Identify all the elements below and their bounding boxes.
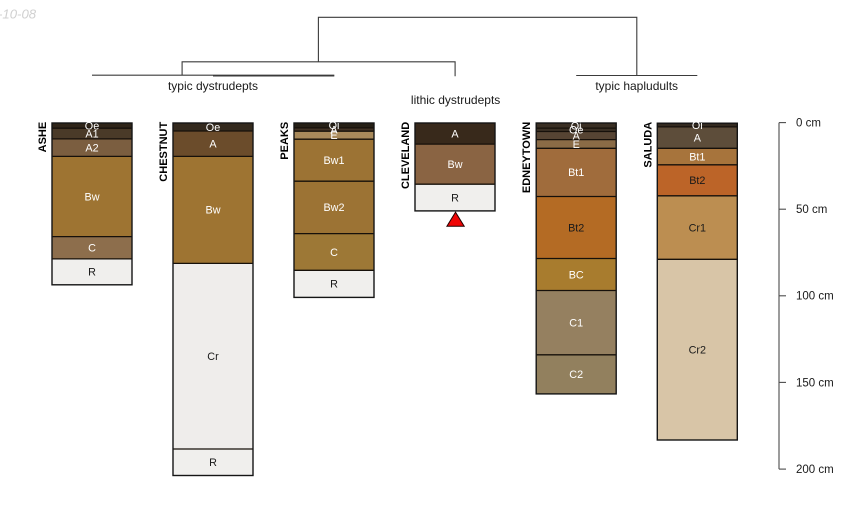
svg-text:A: A (694, 132, 702, 144)
svg-text:Bw: Bw (85, 191, 100, 203)
svg-text:A: A (451, 128, 459, 140)
svg-text:E: E (330, 130, 337, 142)
svg-text:Oe: Oe (206, 122, 220, 134)
svg-text:CLEVELAND: CLEVELAND (400, 122, 412, 189)
svg-text:R: R (330, 279, 338, 291)
svg-text:PEAKS: PEAKS (279, 122, 291, 160)
svg-text:EDNEYTOWN: EDNEYTOWN (521, 122, 533, 193)
svg-text:typic hapludults: typic hapludults (595, 79, 678, 93)
svg-text:R: R (209, 457, 217, 469)
svg-text:Bw2: Bw2 (323, 202, 344, 214)
svg-text:ASHE: ASHE (37, 122, 49, 153)
svg-text:lithic dystrudepts: lithic dystrudepts (411, 93, 500, 107)
svg-text:C: C (88, 243, 96, 255)
svg-text:-10-08: -10-08 (0, 7, 37, 22)
svg-text:C: C (330, 247, 338, 259)
svg-text:0 cm: 0 cm (796, 118, 821, 130)
svg-text:Bt1: Bt1 (568, 167, 584, 179)
svg-text:E: E (573, 139, 580, 151)
svg-text:100 cm: 100 cm (796, 291, 834, 303)
svg-text:A1: A1 (85, 128, 98, 140)
svg-text:C1: C1 (569, 317, 583, 329)
svg-text:Bt2: Bt2 (689, 175, 705, 187)
svg-text:CHESTNUT: CHESTNUT (158, 122, 170, 182)
svg-text:Cr1: Cr1 (689, 222, 706, 234)
svg-text:BC: BC (569, 269, 584, 281)
svg-text:200 cm: 200 cm (796, 464, 834, 476)
svg-text:Cr2: Cr2 (689, 344, 706, 356)
svg-text:50 cm: 50 cm (796, 204, 827, 216)
svg-text:Bt1: Bt1 (689, 151, 705, 163)
svg-text:SALUDA: SALUDA (642, 122, 654, 168)
svg-text:Bt2: Bt2 (568, 222, 584, 234)
svg-text:A2: A2 (85, 143, 98, 155)
svg-text:150 cm: 150 cm (796, 377, 834, 389)
svg-text:Oi: Oi (692, 120, 703, 132)
svg-text:R: R (88, 267, 96, 279)
svg-text:A: A (209, 139, 217, 151)
svg-text:Bw: Bw (206, 205, 221, 217)
svg-text:C2: C2 (569, 369, 583, 381)
svg-text:Cr: Cr (207, 351, 219, 363)
svg-text:R: R (451, 192, 459, 204)
svg-text:Bw1: Bw1 (323, 155, 344, 167)
svg-text:Bw: Bw (448, 159, 463, 171)
svg-text:typic dystrudepts: typic dystrudepts (168, 79, 258, 93)
